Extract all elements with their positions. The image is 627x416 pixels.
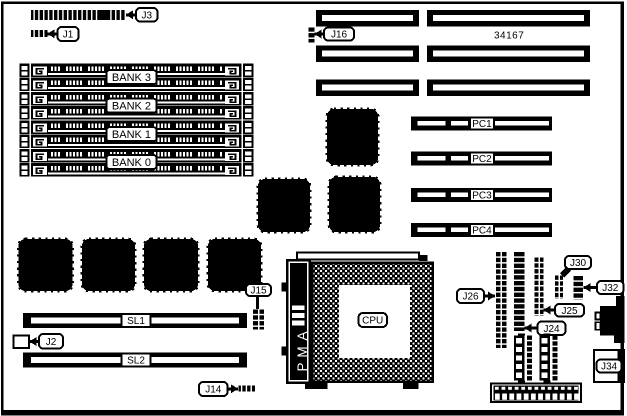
svg-text:P: P <box>295 362 310 371</box>
svg-text:J24: J24 <box>543 324 560 335</box>
svg-text:BANK 3: BANK 3 <box>112 72 151 84</box>
svg-text:SL2: SL2 <box>127 356 145 367</box>
svg-text:BANK 0: BANK 0 <box>112 157 151 169</box>
svg-text:J34: J34 <box>601 362 618 373</box>
svg-text:BANK 1: BANK 1 <box>112 129 151 141</box>
svg-text:PC3: PC3 <box>472 190 492 201</box>
svg-text:SL1: SL1 <box>127 316 145 327</box>
svg-text:J3: J3 <box>141 10 152 21</box>
svg-text:J1: J1 <box>63 30 74 41</box>
svg-text:J15: J15 <box>250 286 267 297</box>
svg-text:J30: J30 <box>570 258 587 269</box>
svg-text:34167: 34167 <box>494 31 524 42</box>
svg-text:CPU: CPU <box>362 316 383 327</box>
svg-text:A: A <box>295 331 310 340</box>
svg-text:J26: J26 <box>462 292 479 303</box>
svg-text:J32: J32 <box>602 283 619 294</box>
svg-text:J2: J2 <box>46 337 57 348</box>
svg-text:J14: J14 <box>205 385 222 396</box>
svg-text:BANK 2: BANK 2 <box>112 101 151 113</box>
svg-text:PC2: PC2 <box>472 154 492 165</box>
svg-text:M: M <box>295 346 310 357</box>
svg-text:PC4: PC4 <box>472 225 492 236</box>
svg-text:J25: J25 <box>561 306 578 317</box>
svg-text:PC1: PC1 <box>472 119 492 130</box>
svg-text:J16: J16 <box>331 30 348 41</box>
